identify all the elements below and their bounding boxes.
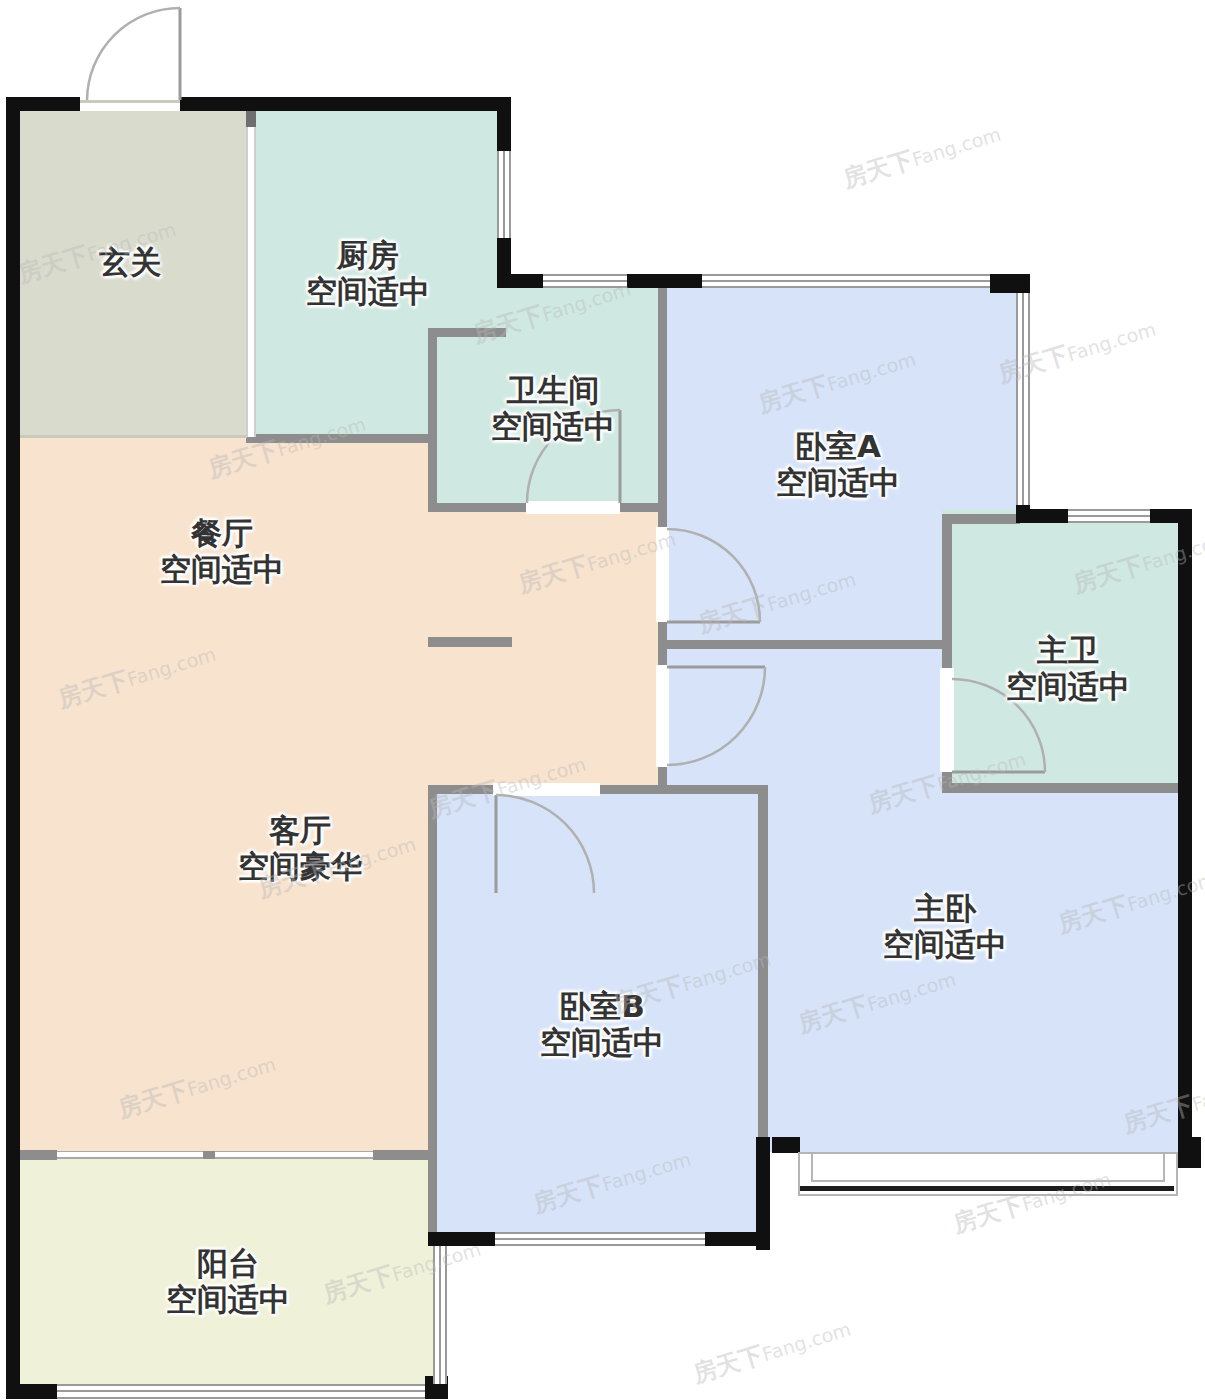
- room-label-balcony: 阳台空间适中: [166, 1245, 290, 1317]
- room-name: 卧室B: [540, 988, 664, 1024]
- interior-wall-segment: [620, 503, 662, 512]
- entry-threshold-line: [80, 100, 180, 103]
- exterior-wall-segment: [6, 97, 20, 1399]
- room-label-bathroom: 卫生间空间适中: [491, 372, 615, 444]
- room-label-kitchen: 厨房空间适中: [306, 237, 430, 309]
- interior-wall-segment: [942, 514, 1020, 524]
- slider-tick: [203, 1151, 215, 1159]
- interior-wall-segment: [598, 785, 768, 794]
- door-arc: [87, 8, 180, 100]
- exterior-wall-segment: [180, 97, 511, 111]
- interior-wall-segment: [428, 785, 495, 794]
- floorplan-canvas: 玄关厨房空间适中卫生间空间适中卧室A空间适中餐厅空间适中主卫空间适中客厅空间豪华…: [0, 0, 1205, 1400]
- room-size-note: 空间适中: [540, 1024, 664, 1060]
- watermark-brand-en: Fang.com: [910, 123, 1004, 171]
- bay-window-inner: [811, 1152, 1165, 1182]
- interior-wall-segment: [667, 640, 942, 649]
- watermark-brand-en: Fang.com: [1065, 318, 1159, 366]
- door-opening: [940, 668, 954, 772]
- interior-wall-segment: [942, 783, 1178, 793]
- room-name: 客厅: [238, 812, 362, 848]
- interior-wall-segment: [758, 785, 768, 1137]
- interior-wall-segment: [658, 288, 667, 527]
- room-label-dining: 餐厅空间适中: [160, 515, 284, 587]
- interior-wall-segment: [428, 332, 437, 512]
- exterior-wall-segment: [6, 97, 80, 111]
- foyer-kitchen-divider: [246, 111, 256, 437]
- room-name: 主卫: [1006, 632, 1130, 668]
- exterior-wall-segment: [497, 111, 511, 151]
- room-label-master-bath: 主卫空间适中: [1006, 632, 1130, 704]
- room-name: 阳台: [166, 1245, 290, 1281]
- room-size-note: 空间适中: [491, 408, 615, 444]
- window-symbol: [497, 151, 511, 238]
- room-size-note: 空间适中: [776, 464, 900, 500]
- exterior-wall-segment: [428, 1232, 495, 1246]
- interior-wall-segment: [428, 637, 512, 647]
- exterior-wall-segment: [705, 1232, 770, 1246]
- watermark-brand-cn: 房天下: [949, 1190, 1026, 1238]
- room-label-bedroom-b: 卧室B空间适中: [540, 988, 664, 1060]
- room-size-note: 空间适中: [883, 926, 1007, 962]
- exterior-wall-segment: [6, 1384, 57, 1399]
- window-symbol: [495, 1232, 705, 1246]
- watermark-brand-en: Fang.com: [760, 1318, 854, 1366]
- room-name: 卫生间: [491, 372, 615, 408]
- room-name: 主卧: [883, 890, 1007, 926]
- room-label-master-bed: 主卧空间适中: [883, 890, 1007, 962]
- interior-wall-segment: [942, 514, 952, 668]
- window-symbol: [57, 1384, 425, 1399]
- room-label-living: 客厅空间豪华: [238, 812, 362, 884]
- room-name: 餐厅: [160, 515, 284, 551]
- room-size-note: 空间适中: [306, 273, 430, 309]
- room-name: 玄关: [99, 244, 161, 280]
- door-opening: [526, 501, 620, 514]
- room-label-bedroom-a: 卧室A空间适中: [776, 428, 900, 500]
- watermark-brand-cn: 房天下: [689, 1340, 766, 1388]
- interior-wall-segment: [246, 434, 437, 443]
- exterior-wall-segment: [772, 1137, 800, 1153]
- room-name: 卧室A: [776, 428, 900, 464]
- fang-watermark: 房天下Fang.com: [689, 1312, 855, 1390]
- room-label-foyer: 玄关: [99, 244, 161, 280]
- window-symbol: [1068, 509, 1150, 523]
- room-size-note: 空间适中: [1006, 668, 1130, 704]
- fang-watermark: 房天下Fang.com: [839, 117, 1005, 195]
- exterior-wall-segment: [627, 274, 702, 288]
- window-symbol: [543, 274, 627, 288]
- watermark-brand-cn: 房天下: [839, 145, 916, 193]
- divider-stub: [246, 111, 256, 127]
- interior-wall-segment: [658, 622, 667, 665]
- exterior-wall-segment: [1178, 1137, 1201, 1168]
- balcony-slider-window: [57, 1151, 373, 1159]
- room-size-note: 空间适中: [166, 1281, 290, 1317]
- interior-wall-segment: [373, 1150, 437, 1160]
- room-size-note: 空间适中: [160, 551, 284, 587]
- door-opening: [656, 665, 669, 767]
- exterior-wall-segment: [497, 274, 543, 288]
- window-symbol: [433, 1246, 447, 1384]
- room-size-note: 空间豪华: [238, 848, 362, 884]
- exterior-wall-segment: [1016, 505, 1030, 523]
- window-symbol: [702, 274, 990, 288]
- bay-window-glass-line: [800, 1186, 1174, 1191]
- interior-wall-segment: [20, 1150, 57, 1160]
- room-name: 厨房: [306, 237, 430, 273]
- interior-wall-segment: [428, 785, 437, 1232]
- window-symbol: [1016, 293, 1030, 505]
- exterior-wall-segment: [1178, 509, 1192, 1152]
- door-opening: [656, 527, 669, 622]
- floor-divider-line: [20, 435, 247, 438]
- exterior-wall-segment: [1030, 509, 1068, 523]
- exterior-wall-segment: [990, 274, 1030, 293]
- interior-wall-segment: [428, 503, 526, 512]
- interior-wall-segment: [428, 328, 506, 337]
- door-opening: [493, 783, 600, 796]
